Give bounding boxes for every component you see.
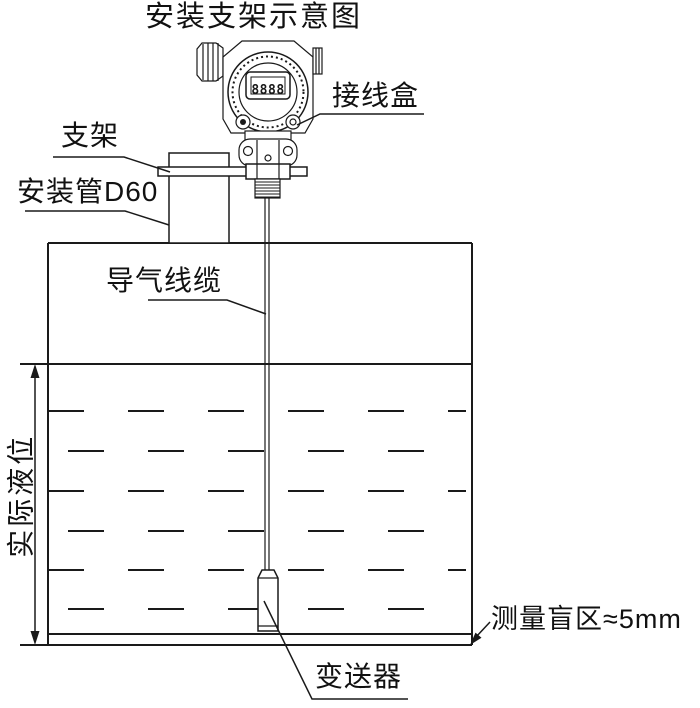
leader-junction-box <box>297 114 424 125</box>
label-actual-level: 实际液位 <box>6 431 35 561</box>
dimension-arrowhead-bottom <box>31 631 40 645</box>
cable-gland-shape <box>197 43 223 81</box>
liquid-dashes <box>48 411 466 609</box>
lcd-display-value: 8888 <box>251 83 284 98</box>
dimension-arrowhead-top <box>31 364 40 378</box>
leader-mounting-pipe <box>25 211 169 225</box>
tank-outline <box>20 243 472 645</box>
leader-blind-zone <box>476 622 490 637</box>
label-transmitter: 变送器 <box>315 662 402 691</box>
hex-nut-shape <box>246 164 290 179</box>
process-connection <box>246 164 290 198</box>
label-bracket: 支架 <box>61 121 119 150</box>
diagram-page: 8888 <box>0 0 700 708</box>
side-port-shape <box>313 48 322 74</box>
label-blind-zone: 测量盲区≈5mm <box>491 605 682 633</box>
label-junction-box: 接线盒 <box>332 81 419 110</box>
cable-line <box>265 198 269 572</box>
transmitter-head-drawing: 8888 <box>197 41 322 166</box>
label-mounting-pipe: 安装管D60 <box>17 177 158 206</box>
left-lug-screw-dot <box>240 119 246 125</box>
leader-air-cable <box>148 300 266 314</box>
label-air-cable: 导气线缆 <box>106 266 222 295</box>
leader-bracket <box>53 157 170 172</box>
yoke-shape <box>239 139 297 166</box>
page-title: 安装支架示意图 <box>145 2 362 32</box>
right-lug-circle <box>286 115 300 129</box>
